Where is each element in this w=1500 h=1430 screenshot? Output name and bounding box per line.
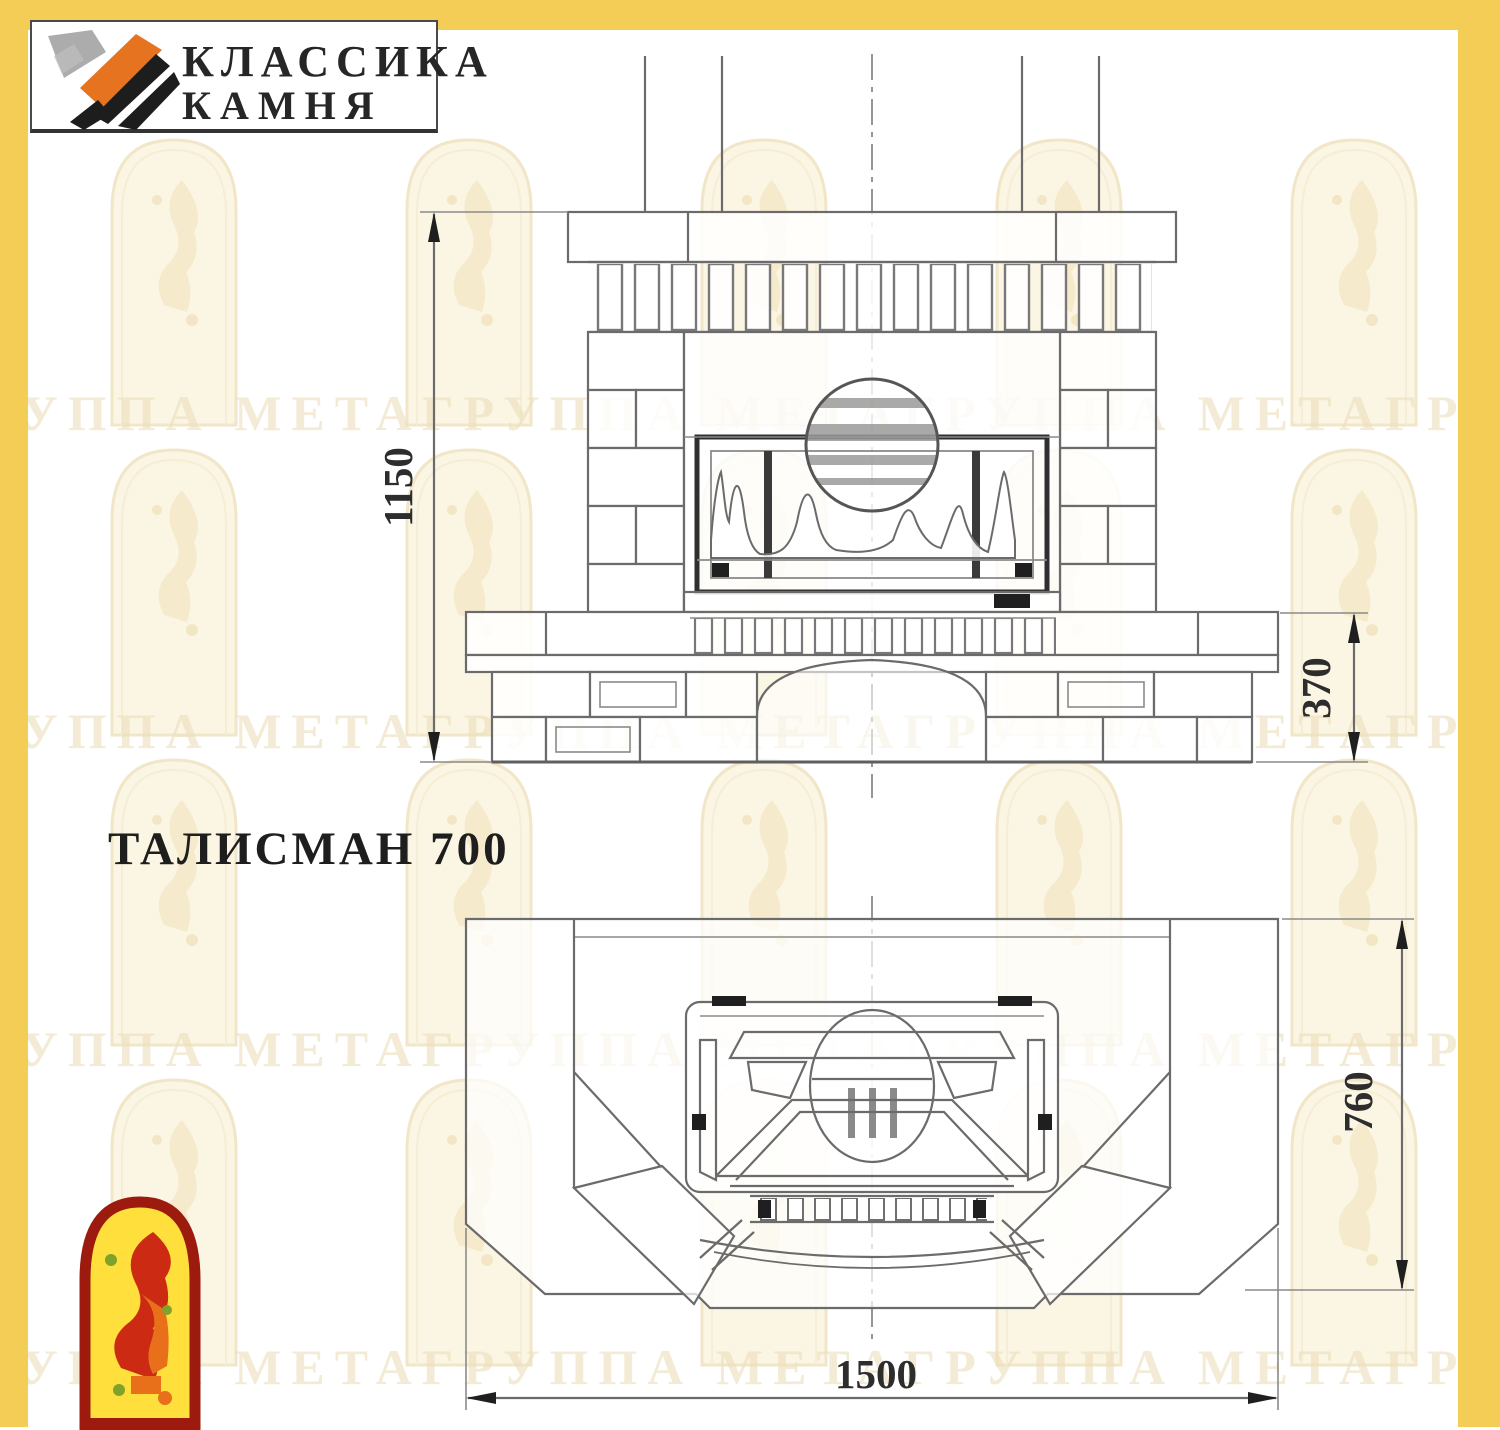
right-brick-column: [1060, 332, 1156, 612]
dim-label-1500: 1500: [835, 1351, 917, 1397]
insert-tab-right: [998, 996, 1032, 1006]
meta-arch-emblem: [75, 1190, 205, 1430]
firebox-insert: [684, 332, 1060, 612]
mantel-shelf: [568, 212, 1176, 262]
door-hinge-left: [712, 563, 729, 577]
door-hinge-right: [1015, 563, 1032, 577]
brand-name-line2: КАМНЯ: [182, 82, 383, 129]
brand-name-line1: КЛАССИКА: [182, 36, 494, 87]
jamb-block-right: [1038, 1114, 1052, 1130]
front-elevation-view: 1150 370: [375, 54, 1368, 798]
frame-band-left: [0, 0, 28, 1427]
left-brick-column: [588, 332, 684, 612]
frame-band-right: [1458, 0, 1500, 1427]
plan-dentil-strip: [750, 1196, 994, 1222]
dentil-course: [588, 262, 1156, 332]
brand-logo-box: КЛАССИКА КАМНЯ: [30, 20, 438, 133]
plan-view: 760 1500: [466, 896, 1414, 1410]
model-title: ТАЛИСМАН 700: [108, 822, 510, 876]
dim-label-760: 760: [1335, 1071, 1381, 1133]
wood-niche-arch: [757, 660, 986, 762]
jamb-block-left: [692, 1114, 706, 1130]
dim-label-1150: 1150: [375, 447, 421, 527]
ash-drawer-handle: [994, 594, 1030, 608]
stone-brush-mark-icon: [40, 26, 180, 130]
stone-base: [492, 660, 1252, 762]
insert-tab-left: [712, 996, 746, 1006]
fireplace-technical-drawing: 1150 370: [0, 0, 1500, 1427]
dim-label-370: 370: [1293, 657, 1339, 719]
